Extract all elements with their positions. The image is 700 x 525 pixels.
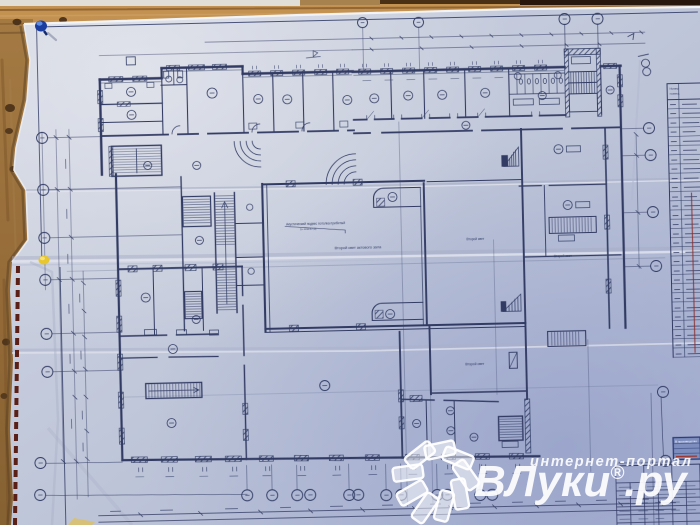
svg-text:Второй свет: Второй свет (465, 362, 484, 366)
svg-text:Второй свет: Второй свет (466, 237, 484, 241)
svg-text:ВЛуки®.ру: ВЛуки®.ру (474, 457, 689, 506)
svg-text:Номер: Номер (670, 86, 680, 90)
svg-text:В производство: В производство (675, 439, 697, 444)
svg-text:(+ отм.67,0): (+ отм.67,0) (300, 227, 316, 231)
svg-text:Второй свет: Второй свет (554, 254, 572, 258)
